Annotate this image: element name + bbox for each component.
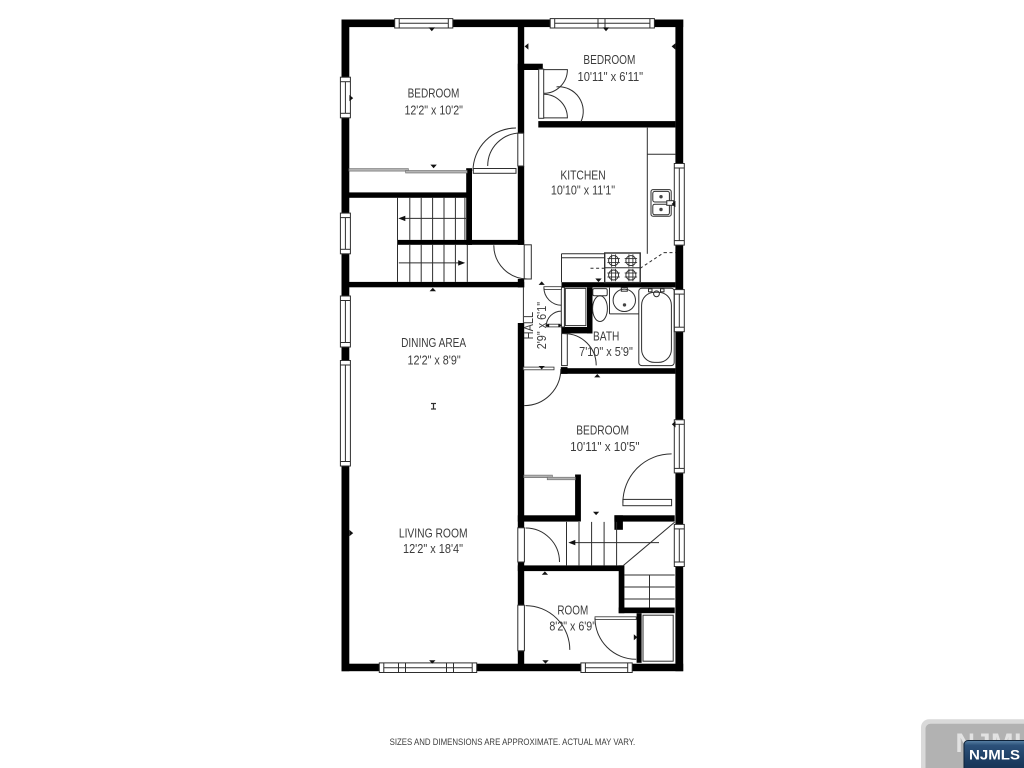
svg-text:KITCHEN: KITCHEN <box>560 167 605 182</box>
svg-text:12'2" x 10'2": 12'2" x 10'2" <box>404 103 463 118</box>
svg-text:10'11" x 6'11": 10'11" x 6'11" <box>578 69 644 84</box>
svg-text:LIVING ROOM: LIVING ROOM <box>399 526 468 541</box>
svg-text:HALL: HALL <box>521 312 536 340</box>
svg-text:BEDROOM: BEDROOM <box>408 86 460 101</box>
svg-text:ROOM: ROOM <box>557 603 588 618</box>
svg-text:7'10" x 5'9": 7'10" x 5'9" <box>579 344 633 359</box>
svg-text:NJMLS: NJMLS <box>969 747 1020 762</box>
svg-text:BATH: BATH <box>593 329 619 344</box>
svg-text:12'2" x 8'9": 12'2" x 8'9" <box>408 352 462 367</box>
svg-text:BEDROOM: BEDROOM <box>576 423 629 438</box>
svg-text:8'2" x 6'9": 8'2" x 6'9" <box>549 618 596 633</box>
svg-text:10'11" x 10'5": 10'11" x 10'5" <box>570 439 640 454</box>
svg-text:BEDROOM: BEDROOM <box>583 52 635 67</box>
svg-text:12'2" x 18'4": 12'2" x 18'4" <box>403 541 463 556</box>
svg-text:10'10" x 11'1": 10'10" x 11'1" <box>551 183 616 198</box>
svg-text:DINING AREA: DINING AREA <box>401 335 466 350</box>
svg-text:SIZES AND DIMENSIONS ARE APPRO: SIZES AND DIMENSIONS ARE APPROXIMATE. AC… <box>390 737 636 747</box>
svg-text:2'9" x 6'1": 2'9" x 6'1" <box>535 302 549 349</box>
